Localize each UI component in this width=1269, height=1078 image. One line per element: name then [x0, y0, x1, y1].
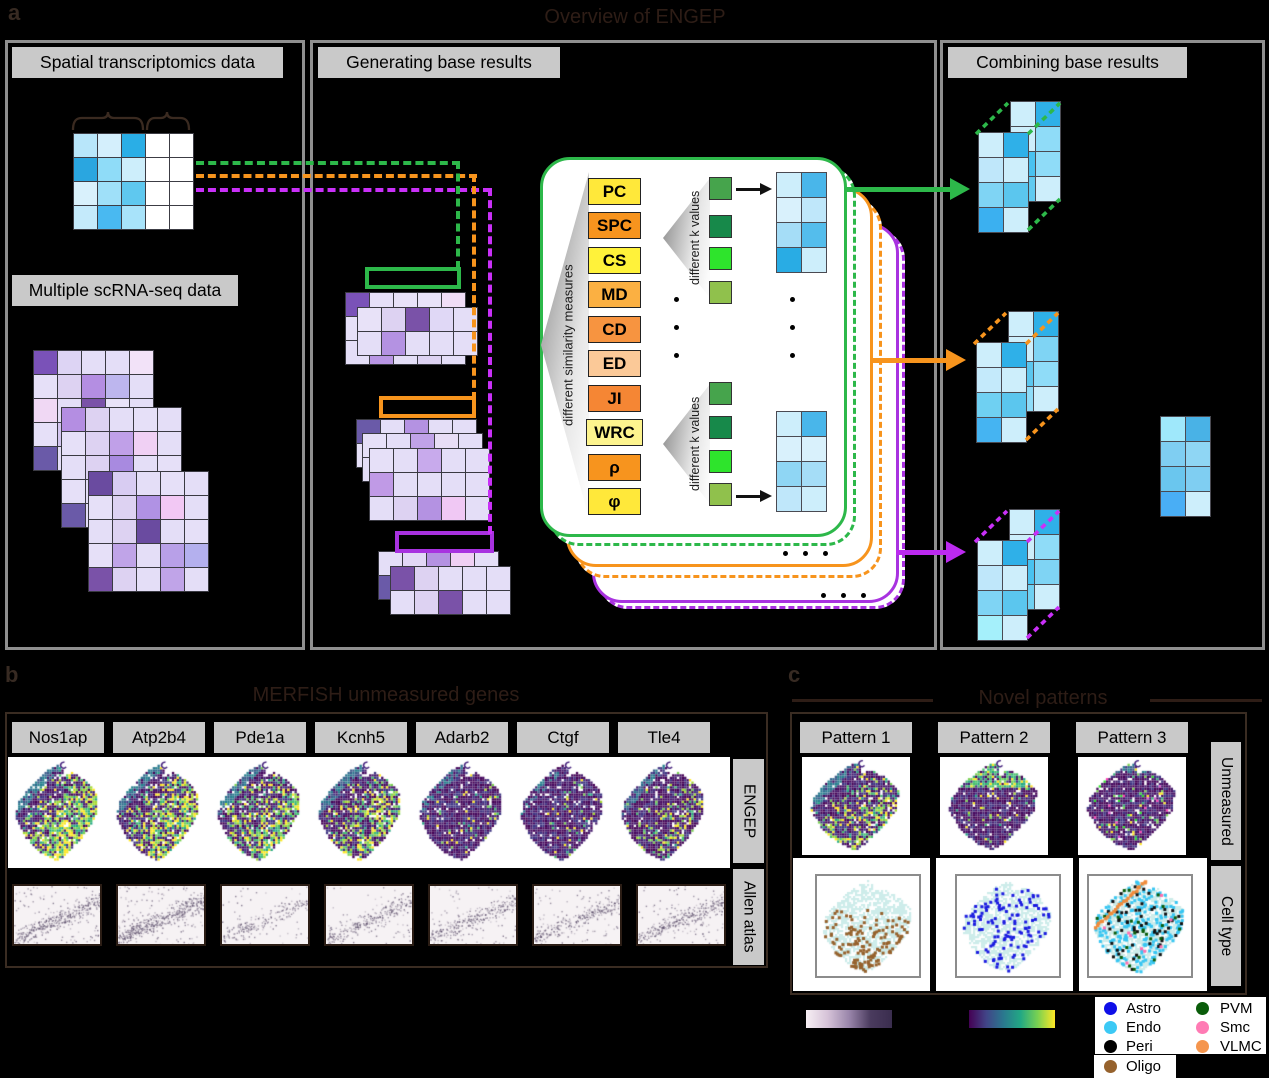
colorbar-expression-purple — [806, 1010, 892, 1028]
stack-1-layer-2 — [357, 307, 478, 356]
celltype-map-3 — [1089, 876, 1191, 976]
combine-diagonals-1 — [962, 96, 1080, 238]
k-square-top-1 — [709, 177, 732, 200]
pattern-label-1: Pattern 1 — [800, 722, 912, 753]
gene-label-Kcnh5: Kcnh5 — [315, 722, 407, 753]
legend-label-VLMC: VLMC — [1220, 1037, 1262, 1055]
measure-pill-CS: CS — [588, 247, 641, 274]
gene-subset-box-purple — [395, 531, 494, 553]
k-arrow-top-icon — [736, 181, 778, 198]
pattern-map-3 — [1082, 759, 1182, 853]
allen-atlas-row-label: Allen atlas — [733, 869, 764, 965]
legend-label-PVM: PVM — [1220, 999, 1253, 1017]
stack-2-layer-3 — [369, 448, 490, 521]
allen-image-Adarb2 — [430, 886, 516, 944]
pattern-label-2: Pattern 2 — [938, 722, 1050, 753]
route-purple-v — [488, 188, 492, 534]
spatial-matrix — [73, 133, 194, 230]
matrix-braces-icon — [68, 108, 196, 134]
k-dots-right — [790, 297, 796, 363]
k-dots-left — [674, 297, 680, 363]
measure-pill-φ: φ — [588, 488, 641, 515]
legend-label-Astro: Astro — [1126, 999, 1161, 1017]
engep-map-Atp2b4 — [112, 760, 206, 864]
engep-row-label: ENGEP — [733, 759, 764, 863]
gene-label-Nos1ap: Nos1ap — [12, 722, 104, 753]
measure-pill-ρ: ρ — [588, 454, 641, 481]
legend-dot-Peri — [1104, 1040, 1117, 1053]
engep-map-Tle4 — [617, 760, 711, 864]
scrna-matrix-3 — [88, 471, 209, 592]
legend-dot-PVM — [1196, 1002, 1209, 1015]
cascade-dots-1 — [783, 551, 843, 557]
generating-label: Generating base results — [318, 47, 560, 78]
k-result-matrix-bottom — [776, 411, 827, 512]
legend-label-Endo: Endo — [1126, 1018, 1161, 1036]
route-orange-v — [472, 174, 476, 400]
legend-label-Oligo: Oligo — [1126, 1057, 1161, 1075]
combine-arrow-purple-icon — [896, 539, 972, 565]
measure-pill-PC: PC — [588, 178, 641, 205]
spatial-data-label: Spatial transcriptomics data — [12, 47, 283, 78]
final-result-matrix — [1160, 416, 1211, 517]
engep-map-Pde1a — [213, 760, 307, 864]
measure-pill-WRC: WRC — [586, 419, 643, 446]
panel-c-title: Novel patterns — [940, 687, 1146, 710]
route-orange-h — [196, 174, 477, 178]
k-square-bottom-2 — [709, 416, 732, 439]
cell-type-row-label: Cell type — [1211, 866, 1241, 986]
k-square-bottom-3 — [709, 450, 732, 473]
pattern-label-3: Pattern 3 — [1076, 722, 1188, 753]
unmeasured-row-label: Unmeasured — [1211, 742, 1241, 860]
panel-b-label: b — [5, 662, 18, 688]
cascade-dots-2 — [821, 593, 881, 599]
route-purple-h — [196, 188, 491, 192]
panel-a-label: a — [8, 0, 20, 26]
celltype-map-2 — [957, 876, 1059, 976]
similarity-measures-label: different similarity measures — [553, 176, 583, 514]
k-square-bottom-1 — [709, 382, 732, 405]
gene-label-Adarb2: Adarb2 — [416, 722, 508, 753]
combine-arrow-orange-icon — [872, 347, 972, 373]
gene-label-Atp2b4: Atp2b4 — [113, 722, 205, 753]
allen-image-Pde1a — [222, 886, 308, 944]
stack-3-layer-2 — [390, 566, 511, 615]
gene-label-Pde1a: Pde1a — [214, 722, 306, 753]
engep-map-Nos1ap — [11, 760, 105, 864]
gene-subset-box-orange — [379, 396, 476, 418]
measure-pill-CD: CD — [588, 316, 641, 343]
allen-image-Ctgf — [534, 886, 620, 944]
combine-diagonals-3 — [961, 504, 1079, 646]
scrna-data-label: Multiple scRNA-seq data — [12, 275, 238, 306]
panel-b-title: MERFISH unmeasured genes — [86, 684, 686, 707]
measure-pill-SPC: SPC — [588, 212, 641, 239]
combine-arrow-green-icon — [846, 176, 976, 202]
k-values-label-top: different k values — [684, 180, 706, 296]
measure-pill-ED: ED — [588, 350, 641, 377]
k-square-top-4 — [709, 281, 732, 304]
figure-root: a Overview of ENGEP Spatial transcriptom… — [0, 0, 1269, 1078]
figure-title: Overview of ENGEP — [440, 6, 830, 29]
pattern-map-1 — [806, 759, 906, 853]
allen-image-Nos1ap — [14, 886, 100, 944]
legend-label-Peri: Peri — [1126, 1037, 1153, 1055]
route-green-h — [196, 161, 460, 165]
legend-label-Smc: Smc — [1220, 1018, 1250, 1036]
gene-label-Tle4: Tle4 — [618, 722, 710, 753]
allen-image-Atp2b4 — [118, 886, 204, 944]
k-result-matrix-top — [776, 172, 827, 273]
legend-dot-Astro — [1104, 1002, 1117, 1015]
k-square-top-2 — [709, 215, 732, 238]
k-values-label-bottom: different k values — [684, 386, 706, 502]
k-arrow-bottom-icon — [736, 488, 778, 505]
engep-map-Ctgf — [516, 760, 610, 864]
panel-c-label: c — [788, 662, 800, 688]
combining-label: Combining base results — [948, 47, 1187, 78]
pattern-map-2 — [944, 759, 1044, 853]
legend-dot-Smc — [1196, 1021, 1209, 1034]
celltype-map-1 — [817, 876, 919, 976]
measure-pill-MD: MD — [588, 281, 641, 308]
title-rule-left — [792, 699, 933, 702]
k-square-bottom-4 — [709, 483, 732, 506]
engep-map-Kcnh5 — [314, 760, 408, 864]
measure-pill-JI: JI — [588, 385, 641, 412]
combine-diagonals-2 — [960, 306, 1078, 448]
gene-label-Ctgf: Ctgf — [517, 722, 609, 753]
gene-subset-box-green — [365, 267, 461, 289]
allen-image-Kcnh5 — [326, 886, 412, 944]
route-green-v — [456, 161, 460, 269]
colorbar-viridis — [969, 1010, 1055, 1028]
legend-dot-VLMC — [1196, 1040, 1209, 1053]
legend-dot-Oligo — [1104, 1060, 1117, 1073]
k-square-top-3 — [709, 247, 732, 270]
legend-dot-Endo — [1104, 1021, 1117, 1034]
title-rule-right — [1150, 699, 1262, 702]
allen-image-Tle4 — [638, 886, 724, 944]
engep-map-Adarb2 — [415, 760, 509, 864]
